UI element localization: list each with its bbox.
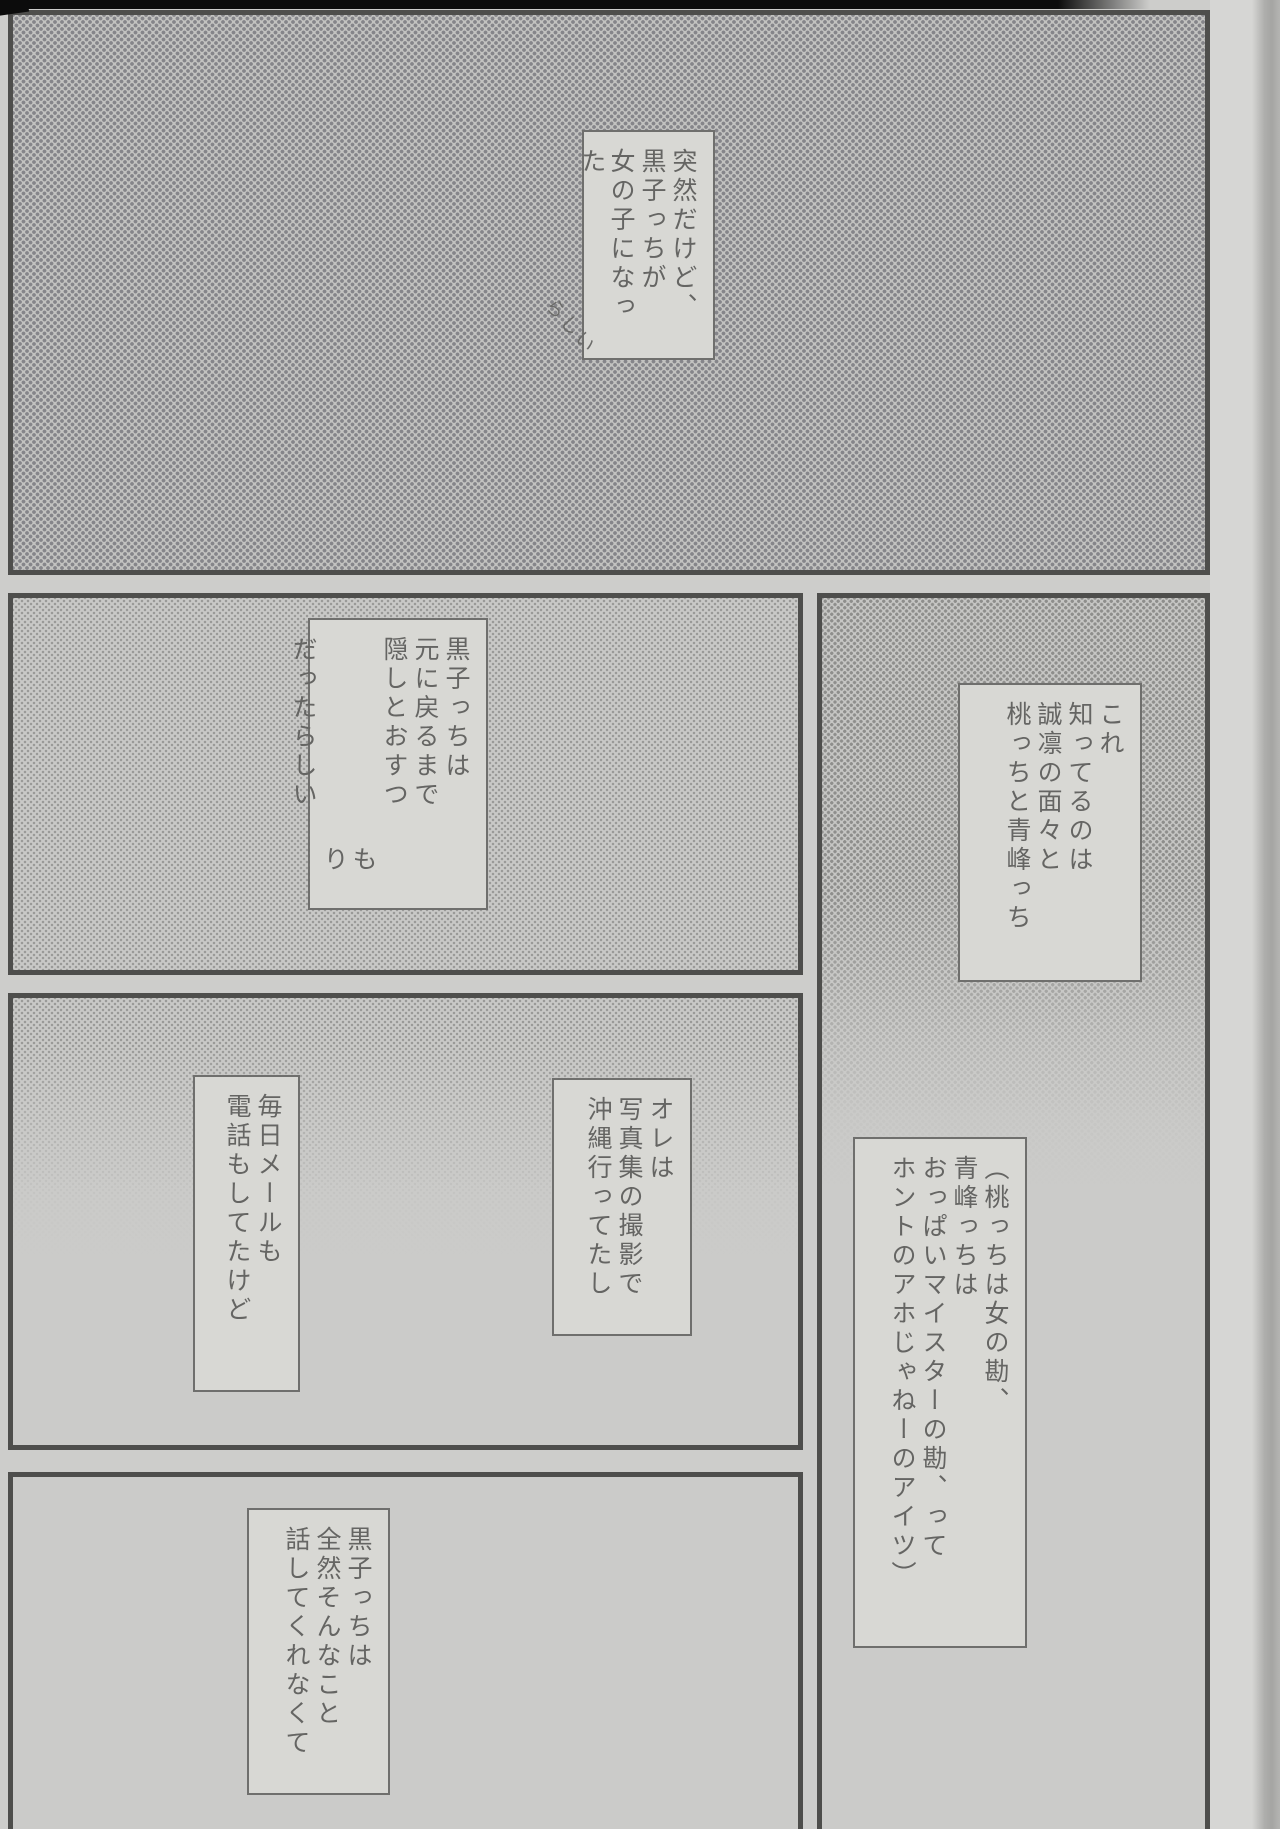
- text-column: ホントのアホじゃねーのアイツ）: [888, 1155, 917, 1630]
- speech-box-intro: 突然だけど、黒子っちが女の子になった: [582, 130, 715, 360]
- text-column: もり: [320, 636, 378, 892]
- text-column: 元に戻るまで: [411, 636, 440, 892]
- manga-page: 突然だけど、黒子っちが女の子になった らしい 黒子っちは元に戻るまで隠しとおすつ…: [0, 0, 1280, 1829]
- text-column: 電話もしてたけど: [223, 1093, 252, 1374]
- vertical-text-kuroko-silent: 黒子っちは全然そんなこと話してくれなくて: [249, 1510, 388, 1793]
- text-column: これ: [1096, 701, 1125, 964]
- top-scan-edge: [0, 0, 1150, 9]
- text-column: オレは: [646, 1096, 675, 1318]
- speech-box-hiding: 黒子っちは元に戻るまで隠しとおすつもりだったらしい: [308, 618, 488, 910]
- vertical-text-okinawa: オレは写真集の撮影で沖縄行ってたし: [554, 1080, 690, 1334]
- text-column: 黒子っちは: [344, 1526, 373, 1777]
- text-column: 青峰っちは: [950, 1155, 979, 1630]
- speech-box-daily-mail: 毎日メールも電話もしてたけど: [193, 1075, 300, 1392]
- speech-box-who-knows: これ知ってるのは誠凛の面々と桃っちと青峰っち: [958, 683, 1142, 982]
- text-column: （桃っちは女の勘、: [981, 1155, 1010, 1630]
- text-column: 写真集の撮影で: [615, 1096, 644, 1318]
- text-column: 黒子っちが: [638, 148, 667, 342]
- text-column: おっぱいマイスターの勘、って: [919, 1155, 948, 1630]
- text-column: 隠しとおすつ: [380, 636, 409, 892]
- text-column: 突然だけど、: [669, 148, 698, 342]
- vertical-text-intro: 突然だけど、黒子っちが女の子になった: [584, 132, 713, 358]
- text-column: 沖縄行ってたし: [584, 1096, 613, 1318]
- book-edge-shadow: [1210, 0, 1280, 1829]
- text-column: 誠凛の面々と: [1034, 701, 1063, 964]
- panel-bottom-left: [8, 1472, 803, 1829]
- speech-box-momoi-aomine: （桃っちは女の勘、青峰っちはおっぱいマイスターの勘、ってホントのアホじゃねーのア…: [853, 1137, 1027, 1648]
- speech-box-okinawa: オレは写真集の撮影で沖縄行ってたし: [552, 1078, 692, 1336]
- text-column: 桃っちと青峰っち: [1003, 701, 1032, 964]
- text-column: 知ってるのは: [1065, 701, 1094, 964]
- vertical-text-who-knows: これ知ってるのは誠凛の面々と桃っちと青峰っち: [960, 685, 1140, 980]
- vertical-text-daily-mail: 毎日メールも電話もしてたけど: [195, 1077, 298, 1390]
- text-column: 黒子っちは: [442, 636, 471, 892]
- text-column: 全然そんなこと: [313, 1526, 342, 1777]
- text-column: 毎日メールも: [254, 1093, 283, 1374]
- text-column: 話してくれなくて: [282, 1526, 311, 1777]
- text-column: 女の子になった: [578, 148, 636, 342]
- vertical-text-hiding: 黒子っちは元に戻るまで隠しとおすつもりだったらしい: [310, 620, 486, 908]
- speech-box-kuroko-silent: 黒子っちは全然そんなこと話してくれなくて: [247, 1508, 390, 1795]
- vertical-text-momoi-aomine: （桃っちは女の勘、青峰っちはおっぱいマイスターの勘、ってホントのアホじゃねーのア…: [855, 1139, 1025, 1646]
- text-column: だったらしい: [289, 636, 318, 892]
